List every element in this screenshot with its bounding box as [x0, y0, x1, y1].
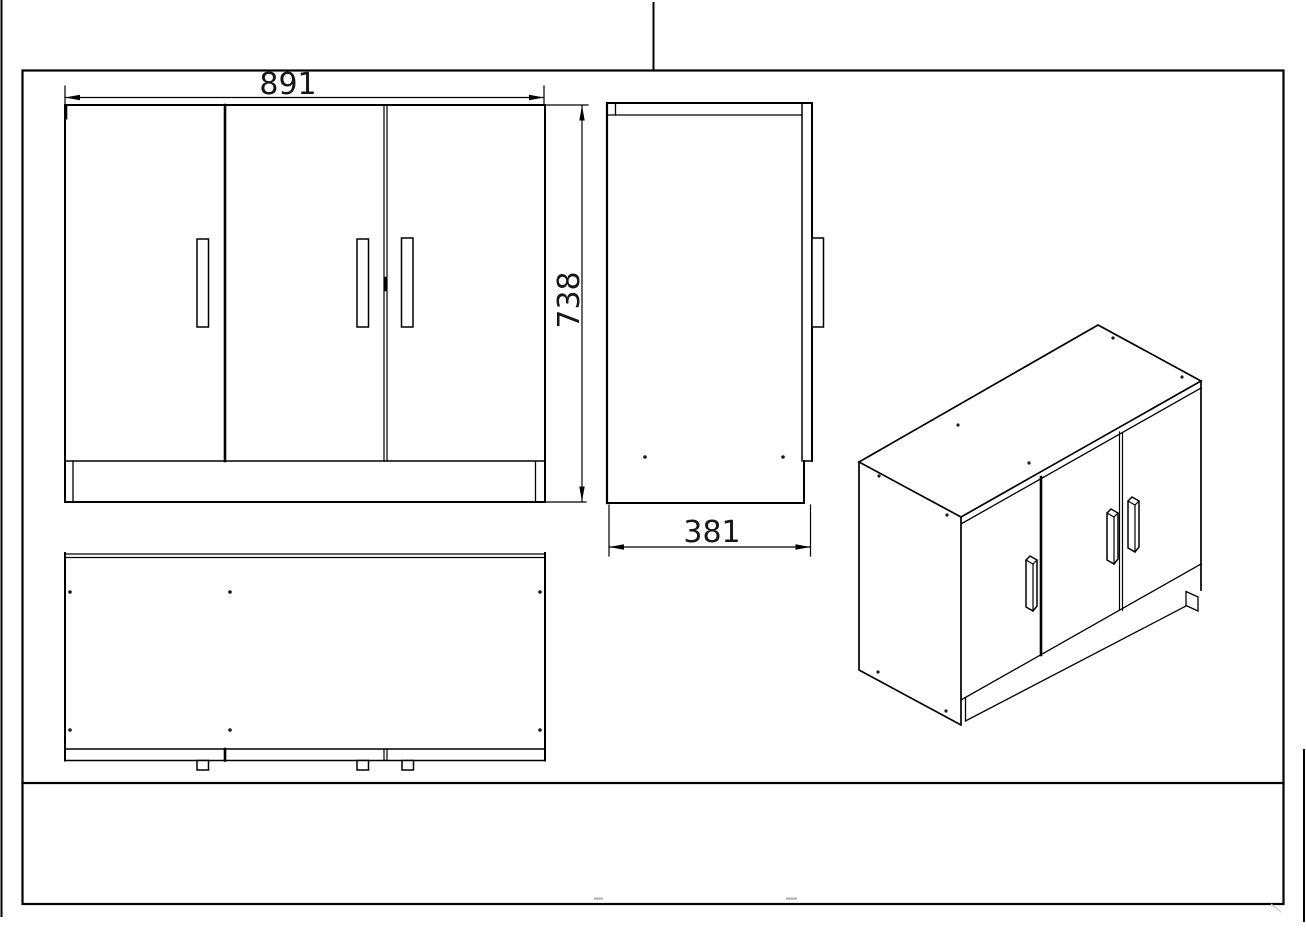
depth-dimension-value: 381: [683, 515, 740, 550]
faint-mark: [786, 898, 797, 900]
top-hole-dot: [228, 728, 232, 732]
iso-door-bottom-edge: [961, 564, 1201, 700]
top-handle-left: [197, 761, 209, 771]
top-hole-dot: [538, 590, 542, 594]
top-handle-right: [402, 761, 414, 771]
iso-handle-left: [1026, 556, 1037, 611]
iso-hole-dot: [877, 474, 880, 477]
depth-arrow-right: [796, 544, 811, 549]
top-hole-dot: [68, 590, 72, 594]
dimension-width: 891: [65, 67, 544, 105]
height-arrow-top: [579, 106, 584, 121]
width-arrow-left: [65, 95, 80, 100]
front-view: [65, 105, 588, 502]
top-view: [65, 553, 545, 770]
front-handle-middle: [357, 239, 369, 327]
side-hole-dot: [781, 455, 785, 459]
height-dimension-value: 738: [552, 271, 587, 328]
top-handle-middle: [357, 761, 369, 771]
iso-handle-right: [1128, 497, 1139, 552]
iso-handle-middle: [1107, 509, 1118, 564]
iso-left-face: [859, 462, 961, 725]
faint-mark: [594, 898, 603, 900]
height-arrow-bottom: [579, 487, 584, 502]
depth-arrow-left: [609, 544, 624, 549]
iso-hole-dot: [945, 513, 948, 516]
iso-hole-dot: [944, 709, 947, 712]
front-handle-left: [197, 239, 209, 327]
width-arrow-right: [529, 95, 544, 100]
top-hole-dot: [228, 590, 232, 594]
iso-plinth-bottom-edge: [966, 606, 1187, 721]
faint-mark: [1271, 904, 1281, 912]
iso-top-face: [859, 325, 1201, 517]
drawing-frame: [23, 71, 1284, 905]
top-hole-dot: [538, 728, 542, 732]
iso-hole-dot: [876, 670, 879, 673]
iso-hole-dot: [1180, 375, 1183, 378]
dimension-depth: 381: [609, 505, 811, 556]
drawing-sheet: 891 738 381: [0, 0, 1306, 932]
cabinet-technical-drawing: 891 738 381: [0, 0, 1306, 932]
front-handle-right: [402, 238, 414, 327]
width-dimension-value: 891: [259, 67, 316, 102]
front-outline: [65, 105, 545, 502]
iso-plinth-notch: [1186, 592, 1198, 612]
dimension-height: 738: [552, 106, 587, 502]
isometric-view: [859, 325, 1201, 725]
side-handle: [812, 238, 824, 327]
iso-hole-dot: [1027, 461, 1030, 464]
iso-hole-dot: [1111, 336, 1114, 339]
iso-door-top-edge: [961, 388, 1201, 524]
side-hole-dot: [643, 455, 647, 459]
side-view: [607, 103, 824, 503]
top-hole-dot: [68, 728, 72, 732]
iso-hole-dot: [956, 423, 959, 426]
